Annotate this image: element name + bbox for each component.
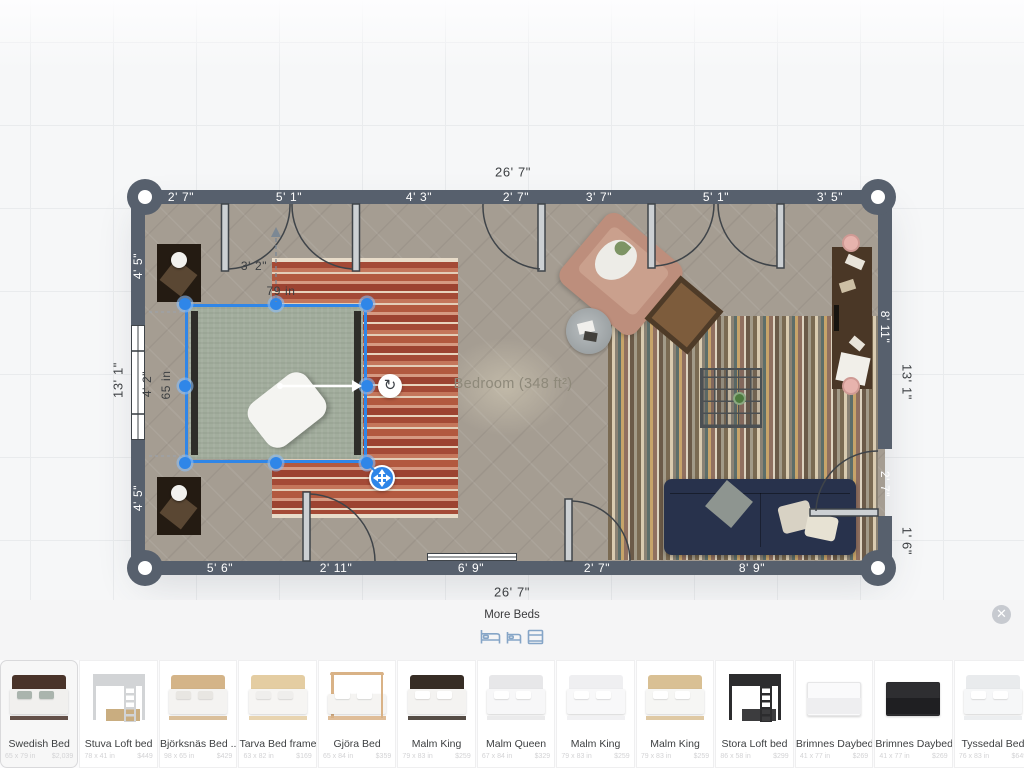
desk[interactable] — [832, 247, 872, 389]
nightstand-bottom[interactable] — [157, 477, 201, 535]
selection-width-label: 79 in — [266, 284, 295, 298]
double-bed-icon[interactable] — [480, 629, 501, 645]
dim-bottom-total: 26' 7" — [494, 585, 530, 600]
close-button[interactable]: ✕ — [992, 605, 1011, 624]
bunk-bed-icon[interactable] — [527, 629, 544, 645]
dim-left-total: 13' 1" — [111, 362, 126, 398]
item-dims: 79 x 83 in — [561, 753, 591, 760]
item-thumbnail — [565, 670, 627, 726]
item-thumbnail — [644, 670, 706, 726]
item-thumbnail — [803, 670, 865, 726]
item-name: Brimnes Daybed — [875, 738, 951, 750]
wall-bottom[interactable] — [145, 561, 878, 575]
dim-top-seg: 2' 7" — [168, 190, 194, 204]
item-thumbnail — [247, 670, 309, 726]
item-thumbnail — [485, 670, 547, 726]
table-lamp — [171, 252, 187, 268]
selection-handle-s[interactable] — [270, 457, 282, 469]
item-price: $649 — [1012, 753, 1024, 760]
sheet-title: More Beds — [484, 609, 540, 621]
item-dims: 63 x 82 in — [243, 753, 273, 760]
dim-top-seg: 5' 1" — [703, 190, 729, 204]
dim-top-seg: 3' 5" — [817, 190, 843, 204]
paper — [845, 254, 866, 270]
item-dims: 79 x 83 in — [402, 753, 432, 760]
item-name: Tarva Bed frame — [239, 738, 315, 750]
selection-handle-w[interactable] — [179, 380, 191, 392]
item-name: Tyssedal Bed — [955, 738, 1024, 750]
room-label: Bedroom (348 ft²) — [454, 376, 573, 392]
furniture-item[interactable]: Malm King 79 x 83 in $259 — [636, 660, 714, 768]
corner-joint-top-right[interactable] — [860, 179, 896, 215]
item-price: $2,039 — [52, 753, 73, 760]
selection-handle-n[interactable] — [270, 298, 282, 310]
sofa-pillow-gray — [705, 480, 753, 528]
item-name: Malm King — [637, 738, 713, 750]
item-price: $259 — [694, 753, 710, 760]
item-thumbnail — [8, 670, 70, 726]
dim-left-seg: 4' 5" — [131, 485, 145, 511]
desk-chair-top[interactable] — [842, 234, 860, 252]
paper — [849, 336, 866, 352]
item-price: $269 — [853, 753, 869, 760]
item-dims: 65 x 84 in — [323, 753, 353, 760]
dim-left-seg: 4' 5" — [131, 253, 145, 279]
item-name: Stora Loft bed — [716, 738, 792, 750]
item-price: $329 — [535, 753, 551, 760]
item-thumbnail — [406, 670, 468, 726]
dim-top-seg: 2' 7" — [503, 190, 529, 204]
coffee-table[interactable] — [700, 368, 762, 428]
item-dims: 76 x 83 in — [959, 753, 989, 760]
item-price: $169 — [296, 753, 312, 760]
item-thumbnail — [88, 670, 150, 726]
item-name: Malm King — [398, 738, 474, 750]
item-thumbnail — [962, 670, 1024, 726]
furniture-item[interactable]: Malm King 79 x 83 in $259 — [397, 660, 475, 768]
floor-planner-app: ↻ Bedroom (348 ft²) 26' 7" 26' 7" 13' 1"… — [0, 0, 1024, 768]
item-price: $429 — [217, 753, 233, 760]
furniture-item[interactable]: Malm King 79 x 83 in $259 — [556, 660, 634, 768]
dim-left-window: 4' 2" — [140, 371, 154, 397]
selection-handle-sw[interactable] — [179, 457, 191, 469]
dim-bottom-seg: 5' 6" — [207, 561, 233, 575]
corner-joint-bottom-right[interactable] — [860, 550, 896, 586]
table-lamp — [171, 485, 187, 501]
item-dims: 98 x 65 in — [164, 753, 194, 760]
item-price: $359 — [376, 753, 392, 760]
furniture-item[interactable]: Tarva Bed frame 63 x 82 in $169 — [238, 660, 316, 768]
dim-right-total: 13' 1" — [900, 364, 915, 400]
window-bottom[interactable] — [427, 553, 517, 561]
item-price: $449 — [137, 753, 153, 760]
item-dims: 86 x 58 in — [720, 753, 750, 760]
corner-joint-top-left[interactable] — [127, 179, 163, 215]
item-name: Malm Queen — [478, 738, 554, 750]
furniture-item[interactable]: Gjöra Bed 65 x 84 in $359 — [318, 660, 396, 768]
rotate-icon: ↻ — [384, 377, 397, 394]
item-price: $259 — [455, 753, 471, 760]
furniture-item[interactable]: Stuva Loft bed 78 x 41 in $449 — [79, 660, 157, 768]
item-dims: 41 x 77 in — [800, 753, 830, 760]
sofa-pillow-light — [804, 512, 839, 542]
dim-top-seg: 5' 1" — [276, 190, 302, 204]
dim-bottom-seg: 8' 9" — [739, 561, 765, 575]
selection-handle-ne[interactable] — [361, 298, 373, 310]
item-name: Gjöra Bed — [319, 738, 395, 750]
paper — [839, 279, 856, 293]
furniture-item[interactable]: Björksnäs Bed ... 98 x 65 in $429 — [159, 660, 237, 768]
item-thumbnail — [724, 670, 786, 726]
close-icon: ✕ — [996, 606, 1007, 621]
furniture-item[interactable]: Stora Loft bed 86 x 58 in $299 — [715, 660, 793, 768]
item-name: Björksnäs Bed ... — [160, 738, 236, 750]
item-thumbnail — [167, 670, 229, 726]
item-thumbnail — [326, 670, 388, 726]
bed-type-filter — [480, 629, 544, 645]
item-name: Malm King — [557, 738, 633, 750]
item-name: Stuva Loft bed — [80, 738, 156, 750]
dim-right-seg: 8' 11" — [878, 311, 892, 344]
nightstand-top[interactable] — [157, 244, 201, 302]
item-dims: 79 x 83 in — [641, 753, 671, 760]
furniture-item[interactable]: Malm Queen 67 x 84 in $329 — [477, 660, 555, 768]
selection-depth-label: 65 in — [159, 370, 173, 399]
desk-chair-bottom[interactable] — [842, 377, 860, 395]
bottom-sheet: More Beds ✕ Swedish Bed 65 x 79 in $2,03… — [0, 600, 1024, 768]
selection-box[interactable] — [185, 304, 367, 463]
dim-right-lower: 1' 6" — [900, 527, 915, 555]
item-dims: 67 x 84 in — [482, 753, 512, 760]
selection-handle-nw[interactable] — [179, 298, 191, 310]
rotate-button[interactable]: ↻ — [378, 374, 402, 398]
item-price: $269 — [932, 753, 948, 760]
item-name: Brimnes Daybed — [796, 738, 872, 750]
selection-handle-e[interactable] — [361, 380, 373, 392]
item-price: $299 — [773, 753, 789, 760]
move-icon — [371, 467, 393, 489]
potted-plant — [733, 392, 746, 405]
furniture-item[interactable]: Brimnes Daybed 41 x 77 in $269 — [874, 660, 952, 768]
dim-top-total: 26' 7" — [495, 165, 531, 180]
furniture-item[interactable]: Swedish Bed 65 x 79 in $2,039 — [0, 660, 78, 768]
monitor — [834, 305, 839, 331]
selection-gap-label: 3' 2" — [241, 259, 267, 273]
tray — [583, 331, 597, 342]
corner-joint-bottom-left[interactable] — [127, 550, 163, 586]
dim-right-seg: 2' 7" — [878, 471, 892, 497]
item-dims: 78 x 41 in — [84, 753, 114, 760]
dim-top-seg: 4' 3" — [406, 190, 432, 204]
item-thumbnail — [882, 670, 944, 726]
item-dims: 65 x 79 in — [5, 753, 35, 760]
item-name: Swedish Bed — [1, 738, 77, 750]
furniture-list: Swedish Bed 65 x 79 in $2,039 Stuva Loft… — [0, 660, 1024, 768]
dim-bottom-seg: 2' 11" — [320, 561, 353, 575]
single-bed-icon[interactable] — [506, 629, 522, 645]
dim-top-seg: 3' 7" — [586, 190, 612, 204]
item-dims: 41 x 77 in — [879, 753, 909, 760]
sofa[interactable] — [664, 479, 856, 555]
item-price: $259 — [614, 753, 630, 760]
furniture-item[interactable]: Tyssedal Bed 76 x 83 in $649 — [954, 660, 1024, 768]
furniture-item[interactable]: Brimnes Daybed 41 x 77 in $269 — [795, 660, 873, 768]
dim-bottom-seg: 2' 7" — [584, 561, 610, 575]
dim-bottom-seg: 6' 9" — [458, 561, 484, 575]
move-button[interactable] — [369, 465, 395, 491]
round-side-table[interactable] — [566, 308, 612, 354]
